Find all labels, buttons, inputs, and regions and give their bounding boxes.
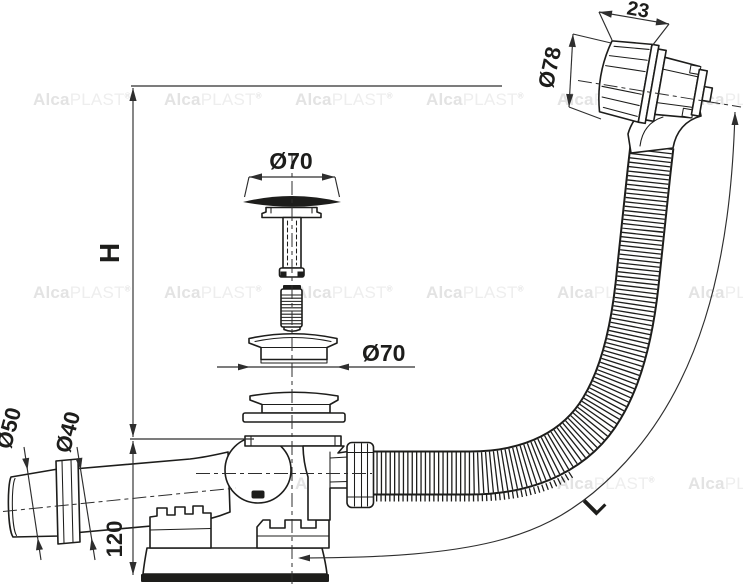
dim-label-120: 120 [102,521,127,558]
dim-installation-height [130,86,502,439]
drain-outlet-pipe [8,459,80,544]
dim-label-hose-length: L [577,487,611,521]
seal-washer [243,392,345,422]
corrugated-hose [372,146,652,498]
bath-waste-technical-drawing: H 120 L Ø70 Ø70 Ø50 Ø40 Ø78 23 [0,0,743,587]
dim-label-flange-70: Ø70 [362,340,405,366]
dim-label-socket-50: Ø50 [0,405,26,452]
drain-body [141,436,374,582]
dim-label-pipe-40: Ø40 [50,409,85,456]
dim-label-plug-70: Ø70 [269,148,312,174]
dim-label-height: H [94,243,125,263]
waste-flange [249,334,337,363]
dim-label-overflow-23: 23 [625,0,651,23]
dim-label-overflow-78: Ø78 [533,44,566,90]
technical-drawing-page: AlcaPLAST®AlcaPLAST®AlcaPLAST®AlcaPLAST®… [0,0,743,587]
